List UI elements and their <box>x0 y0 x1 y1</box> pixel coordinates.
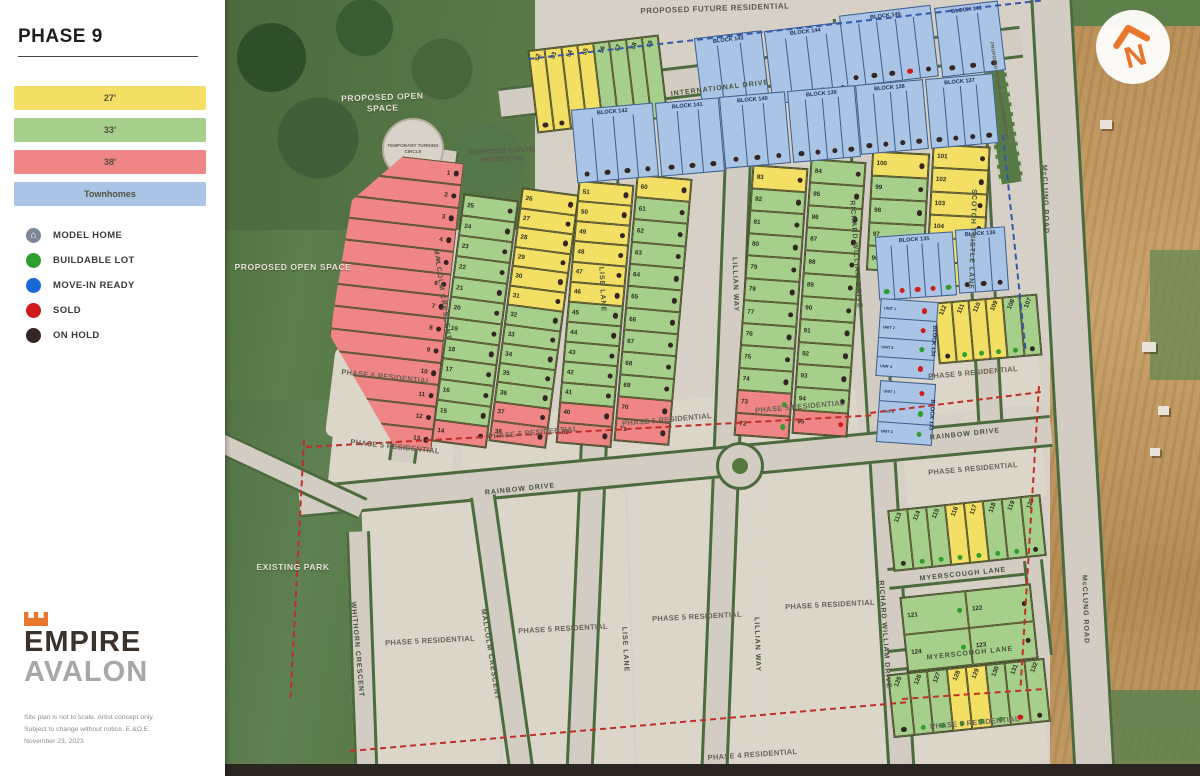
legend-move-in-ready: MOVE-IN READY <box>26 278 135 293</box>
lot-number: 98 <box>874 207 881 214</box>
unit-status-dot <box>916 138 922 144</box>
unit-status-dot <box>798 150 804 156</box>
lot-number: 90 <box>805 304 812 311</box>
model-home-icon: ⌂ <box>26 228 41 243</box>
lot-status-dot <box>783 379 789 385</box>
lot-status-dot <box>496 290 502 296</box>
lot-status-dot <box>669 320 675 326</box>
lot-status-dot <box>681 187 687 193</box>
lot-status-dot <box>425 415 431 421</box>
unit-status-dot <box>953 135 959 141</box>
unit-status-dot <box>776 152 782 158</box>
lot-status-dot <box>488 351 494 357</box>
lot-number: 37 <box>497 408 505 416</box>
lot-number: 121 <box>907 611 918 619</box>
lot-number: 14 <box>437 427 445 435</box>
lot-number: 115 <box>931 508 941 520</box>
lot-number: 86 <box>811 213 818 220</box>
label-existing-park: EXISTING PARK <box>238 562 348 573</box>
lot-number: 127 <box>932 672 942 684</box>
lot-number: 117 <box>969 504 979 516</box>
lot-number: 126 <box>913 674 923 686</box>
lot-status-dot <box>791 267 797 273</box>
roundabout <box>716 442 764 490</box>
lot-status-dot <box>855 171 861 177</box>
unit-label: UNIT 3 <box>881 345 893 350</box>
lot-status-dot <box>549 337 555 343</box>
site-plan: TEMPORARY TURNING CIRCLE 525354555657585… <box>0 0 1200 776</box>
unit-status-dot <box>884 288 890 294</box>
townhome-block-140: BLOCK 140 <box>719 91 791 168</box>
lot-number: 45 <box>572 309 580 317</box>
lot-status-dot <box>555 298 561 304</box>
legend-size-27: 27' <box>14 86 206 110</box>
lot-number: 41 <box>565 389 573 397</box>
lot-status-dot <box>603 413 609 419</box>
lot-number: 74 <box>742 375 749 382</box>
unit-status-dot <box>889 70 895 76</box>
lot-number: 101 <box>937 153 948 161</box>
lot-number: 107 <box>1023 297 1034 309</box>
unit-status-dot <box>815 149 821 155</box>
lot-status-dot <box>443 259 449 265</box>
lot-status-dot <box>499 269 505 275</box>
lot-status-dot <box>493 310 499 316</box>
lot-number: 4 <box>439 236 443 243</box>
lot-status-dot <box>435 326 441 332</box>
lot-number: 24 <box>464 222 472 230</box>
lot-status-dot <box>956 607 962 613</box>
lot-status-dot <box>661 408 667 414</box>
lot-number: 43 <box>568 349 576 357</box>
lot-number: 8 <box>429 324 433 331</box>
townhome-block-138: BLOCK 138 <box>855 79 929 155</box>
lot-number: 92 <box>802 350 809 357</box>
lot-status-dot <box>562 240 568 246</box>
lot-status-dot <box>667 342 673 348</box>
unit-label: UNIT 1 <box>884 306 896 311</box>
unit-status-dot <box>949 64 955 70</box>
unit-status-dot <box>945 284 951 290</box>
lot-number: 64 <box>633 271 641 279</box>
lot-number: 60 <box>640 183 648 191</box>
lot-status-dot <box>614 293 620 299</box>
lot-number: 62 <box>637 227 645 235</box>
unit-status-dot <box>733 156 739 162</box>
lot-status-dot <box>900 560 906 566</box>
lot-status-dot <box>453 171 459 177</box>
legend-model-home: ⌂ MODEL HOME <box>26 228 122 243</box>
lot-number: 1 <box>446 169 450 176</box>
lot-status-dot <box>621 212 627 218</box>
lot-status-dot <box>919 558 925 564</box>
unit-status-dot <box>866 142 872 148</box>
lot-status-dot <box>433 348 439 354</box>
lot-102: 102 <box>931 168 988 194</box>
page-title: PHASE 9 <box>18 26 103 48</box>
label-proposed-open-space: PROPOSED OPEN SPACE <box>325 90 441 116</box>
lot-number: 131 <box>1010 663 1020 675</box>
townhome-unit <box>988 236 1008 290</box>
lot-status-dot <box>565 221 571 227</box>
lot-number: 63 <box>635 249 643 257</box>
lot-number: 67 <box>627 338 635 346</box>
lot-number: 118 <box>988 502 998 514</box>
townhome-block-135: BLOCK 135 <box>875 231 957 300</box>
lot-number: 48 <box>577 248 585 256</box>
townhome-block-136: BLOCK 136 <box>955 226 1009 293</box>
unit-status-dot <box>915 286 921 292</box>
unit-status-dot <box>853 74 859 80</box>
unit-status-dot <box>986 132 992 138</box>
lot-number: 76 <box>745 331 752 338</box>
legend-size-38: 38' <box>14 150 206 174</box>
lot-status-dot <box>610 333 616 339</box>
townhome-unit <box>937 241 956 295</box>
lot-number: 111 <box>955 303 965 315</box>
sold-dot-icon <box>26 303 41 318</box>
lot-number: 22 <box>458 263 466 271</box>
lot-number: 87 <box>810 236 817 243</box>
lot-status-dot <box>918 187 924 193</box>
lot-number: 34 <box>505 350 513 358</box>
unit-status-dot <box>689 162 695 168</box>
lot-number: 104 <box>933 223 944 231</box>
disclaimer-line: Site plan is not to scale. Artist concep… <box>24 714 154 721</box>
disclaimer-line: Subject to change without notice. E.&O.E… <box>24 726 150 733</box>
lot-number: 84 <box>815 168 822 175</box>
lot-status-dot <box>847 285 853 291</box>
lot-number: 40 <box>563 409 571 417</box>
lot-status-dot <box>786 334 792 340</box>
legend-sidebar: PHASE 9 27' 33' 38' Townhomes ⌂ MODEL HO… <box>0 0 225 776</box>
unit-status-dot <box>919 347 925 353</box>
unit-status-dot <box>848 146 854 152</box>
lot-number: 20 <box>453 304 461 312</box>
lot-status-dot <box>789 289 795 295</box>
lot-status-dot <box>552 318 558 324</box>
lot-status-dot <box>451 193 457 199</box>
unit-status-dot <box>883 141 889 147</box>
unit-status-dot <box>970 62 976 68</box>
lot-number: 82 <box>755 196 762 203</box>
buildable-dot-icon <box>26 253 41 268</box>
unit-status-dot <box>919 391 925 397</box>
lot-status-dot <box>623 192 629 198</box>
unit-status-dot <box>917 411 923 417</box>
townhome-block-137: BLOCK 137 <box>925 73 999 149</box>
lot-status-dot <box>607 373 613 379</box>
lot-number: 23 <box>461 243 469 251</box>
lot-number: 26 <box>525 195 533 203</box>
lot-number: 11 <box>418 391 425 399</box>
lot-number: 28 <box>520 234 528 242</box>
lot-status-dot <box>663 386 669 392</box>
lot-status-dot <box>979 156 985 162</box>
lot-number: 79 <box>750 263 757 270</box>
logo-brand: EMPIRE <box>24 628 148 658</box>
disclaimer-line: November 23, 2023 <box>24 738 84 745</box>
unit-label: UNIT 4 <box>880 364 892 369</box>
lot-number: 116 <box>950 506 960 518</box>
lot-number: 103 <box>934 200 945 208</box>
lot-status-dot <box>978 179 984 185</box>
lot-status-dot <box>1036 712 1042 718</box>
townhome-block-139: BLOCK 139 <box>787 85 861 163</box>
lot-status-dot <box>938 556 944 562</box>
legend-size-townhomes: Townhomes <box>14 182 206 206</box>
legend-size-33: 33' <box>14 118 206 142</box>
lot-number: 113 <box>893 512 903 524</box>
lot-number: 31 <box>512 292 520 300</box>
turning-circle-label: TEMPORARY TURNING CIRCLE <box>384 143 442 154</box>
unit-status-dot <box>584 171 590 177</box>
lot-number: 73 <box>741 398 748 405</box>
unit-status-dot <box>832 147 838 153</box>
lot-number: 21 <box>456 284 464 292</box>
lot-status-dot <box>617 253 623 259</box>
lot-number: 25 <box>467 202 475 210</box>
lot-status-dot <box>838 422 844 428</box>
townhome-block-134: BLOCK 134UNIT 1UNIT 2UNIT 3UNIT 4 <box>875 298 938 380</box>
unit-status-dot <box>997 279 1003 285</box>
lot-status-dot <box>787 312 793 318</box>
lot-72: 72 <box>735 412 790 438</box>
lot-number: 17 <box>445 366 453 374</box>
unit-status-dot <box>921 308 927 314</box>
lot-status-dot <box>560 260 566 266</box>
lot-status-dot <box>675 254 681 260</box>
unit-status-dot <box>625 167 631 173</box>
lot-status-dot <box>845 308 851 314</box>
empire-crown-icon <box>24 612 48 626</box>
lot-number: 78 <box>749 286 756 293</box>
lot-status-dot <box>784 357 790 363</box>
lot-status-dot <box>1014 548 1020 554</box>
lot-number: 83 <box>756 173 763 180</box>
north-arrow: N <box>1096 10 1170 84</box>
townhome-unit <box>632 113 658 178</box>
lot-95: 95 <box>793 410 848 437</box>
lot-status-dot <box>671 298 677 304</box>
lot-status-dot <box>901 726 907 732</box>
unit-status-dot <box>920 328 926 334</box>
lot-status-dot <box>501 249 507 255</box>
lot-status-dot <box>945 353 951 359</box>
unit-status-dot <box>871 72 877 78</box>
aerial-house <box>1150 448 1160 456</box>
roundabout-island <box>732 458 748 474</box>
lot-number: 66 <box>629 316 637 324</box>
unit-status-dot <box>917 366 923 372</box>
lot-number: 85 <box>813 190 820 197</box>
empire-avalon-logo: EMPIRE AVALON <box>24 612 148 687</box>
svg-text:N: N <box>1121 38 1150 73</box>
unit-status-dot <box>669 164 675 170</box>
lot-status-dot <box>480 413 486 419</box>
lot-number: 81 <box>753 218 760 225</box>
lot-number: 130 <box>990 665 1000 677</box>
lot-status-dot <box>609 353 615 359</box>
lot-status-dot <box>1029 345 1035 351</box>
lot-number: 30 <box>515 273 523 281</box>
unit-status-dot <box>900 139 906 145</box>
lot-number: 35 <box>502 369 510 377</box>
unit-status-dot <box>907 68 913 74</box>
lot-status-dot <box>504 228 510 234</box>
legend-on-hold: ON HOLD <box>26 328 100 343</box>
lot-number: 70 <box>621 404 629 412</box>
north-arrow-icon: N <box>1107 21 1159 73</box>
lot-status-dot <box>995 550 1001 556</box>
logo-community: AVALON <box>24 658 148 688</box>
lot-number: 46 <box>574 288 582 296</box>
title-rule <box>18 56 198 57</box>
lot-number: 69 <box>623 382 631 390</box>
lot-status-dot <box>996 348 1002 354</box>
lot-status-dot <box>616 273 622 279</box>
lot-number: 44 <box>570 329 578 337</box>
lot-status-dot <box>673 276 679 282</box>
lot-number: 51 <box>582 188 590 196</box>
lot-status-dot <box>491 331 497 337</box>
unit-status-dot <box>981 280 987 286</box>
aerial-field-patch <box>1150 250 1200 380</box>
unit-status-dot <box>936 136 942 142</box>
unit-status-dot <box>925 66 931 72</box>
unit-status-dot <box>645 166 651 172</box>
lot-status-dot <box>612 313 618 319</box>
lot-number: 61 <box>638 205 646 213</box>
lot-number: 129 <box>971 667 981 679</box>
lot-status-dot <box>559 120 565 126</box>
lot-number: 42 <box>567 369 575 377</box>
lot-number: 3 <box>441 214 445 221</box>
lot-status-dot <box>794 222 800 228</box>
lot-status-dot <box>542 395 548 401</box>
lot-number: 88 <box>808 259 815 266</box>
lot-number: 122 <box>972 604 983 612</box>
lot-status-dot <box>430 370 436 376</box>
lot-number: 80 <box>752 241 759 248</box>
unit-status-dot <box>930 285 936 291</box>
aerial-house <box>1158 406 1169 415</box>
lot-number: 32 <box>510 311 518 319</box>
lot-status-dot <box>797 177 803 183</box>
unit-status-dot <box>970 133 976 139</box>
lot-status-dot <box>665 364 671 370</box>
lot-number: 29 <box>517 253 525 261</box>
unit-label: UNIT 1 <box>883 389 895 394</box>
lot-status-dot <box>844 331 850 337</box>
townhome-block-141: BLOCK 141 <box>655 97 725 176</box>
lot-status-dot <box>677 232 683 238</box>
lot-number: 33 <box>507 331 515 339</box>
townhome-block-142: BLOCK 142 <box>571 103 659 184</box>
lot-number: 108 <box>1006 298 1017 310</box>
lot-status-dot <box>605 393 611 399</box>
lot-status-dot <box>544 376 550 382</box>
lot-status-dot <box>567 201 573 207</box>
lot-status-dot <box>445 237 451 243</box>
move-in-dot-icon <box>26 278 41 293</box>
lot-number: 99 <box>875 184 882 191</box>
label-proposed-future-residential: PROPOSED FUTURE RESIDENTIAL <box>640 1 790 17</box>
aerial-house <box>1142 342 1156 352</box>
lot-number: 27 <box>523 215 531 223</box>
lot-103: 103 <box>930 191 987 217</box>
lot-status-dot <box>485 372 491 378</box>
lot-status-dot <box>428 392 434 398</box>
lot-number: 75 <box>744 353 751 360</box>
lot-number: 91 <box>803 327 810 334</box>
lot-status-dot <box>619 232 625 238</box>
lot-status-dot <box>842 353 848 359</box>
on-hold-dot-icon <box>26 328 41 343</box>
lot-status-dot <box>976 552 982 558</box>
lot-number: 9 <box>426 347 430 354</box>
aerial-house <box>1100 120 1112 129</box>
lot-number: 49 <box>579 228 587 236</box>
lot-number: 102 <box>936 176 947 184</box>
townhome-unit <box>763 101 790 164</box>
lot-status-dot <box>962 351 968 357</box>
lot-number: 68 <box>625 360 633 368</box>
lot-status-dot <box>795 199 801 205</box>
lot-status-dot <box>543 122 549 128</box>
lot-98: 98 <box>869 199 926 225</box>
lot-number: 93 <box>800 373 807 380</box>
lot-status-dot <box>957 554 963 560</box>
lot-number: 128 <box>952 669 962 681</box>
lot-number: 77 <box>747 308 754 315</box>
lot-status-dot <box>792 244 798 250</box>
lot-number: 112 <box>938 304 948 316</box>
lot-99: 99 <box>871 175 928 201</box>
lot-number: 132 <box>1029 661 1039 673</box>
lot-number: 7 <box>431 302 435 309</box>
unit-status-dot <box>899 287 905 293</box>
lot-status-dot <box>539 414 545 420</box>
unit-label: UNIT 2 <box>883 326 895 331</box>
lot-status-dot <box>507 208 513 214</box>
lot-status-dot <box>1012 347 1018 353</box>
lot-101: 101 <box>932 145 989 171</box>
lot-number: 15 <box>440 407 448 415</box>
lot-number: 114 <box>912 510 922 522</box>
map-bottom-edge <box>225 764 1200 776</box>
unit-status-dot <box>604 169 610 175</box>
lot-status-dot <box>841 376 847 382</box>
lot-status-dot <box>602 433 608 439</box>
lot-number: 100 <box>876 160 887 168</box>
lot-number: 125 <box>893 676 903 688</box>
lot-number: 36 <box>500 389 508 397</box>
lot-status-dot <box>919 163 925 169</box>
lot-number: 16 <box>442 386 450 394</box>
lot-number: 47 <box>575 268 583 276</box>
lot-status-dot <box>679 209 685 215</box>
lot-100: 100 <box>872 152 929 178</box>
lot-number: 50 <box>581 208 589 216</box>
lot-status-dot <box>483 392 489 398</box>
unit-status-dot <box>754 154 760 160</box>
lot-number: 109 <box>989 300 1000 312</box>
legend-sold: SOLD <box>26 303 81 318</box>
unit-status-dot <box>710 160 716 166</box>
lot-number: 89 <box>807 281 814 288</box>
label-proposed-open-space: PROPOSED OPEN SPACE <box>228 262 358 273</box>
